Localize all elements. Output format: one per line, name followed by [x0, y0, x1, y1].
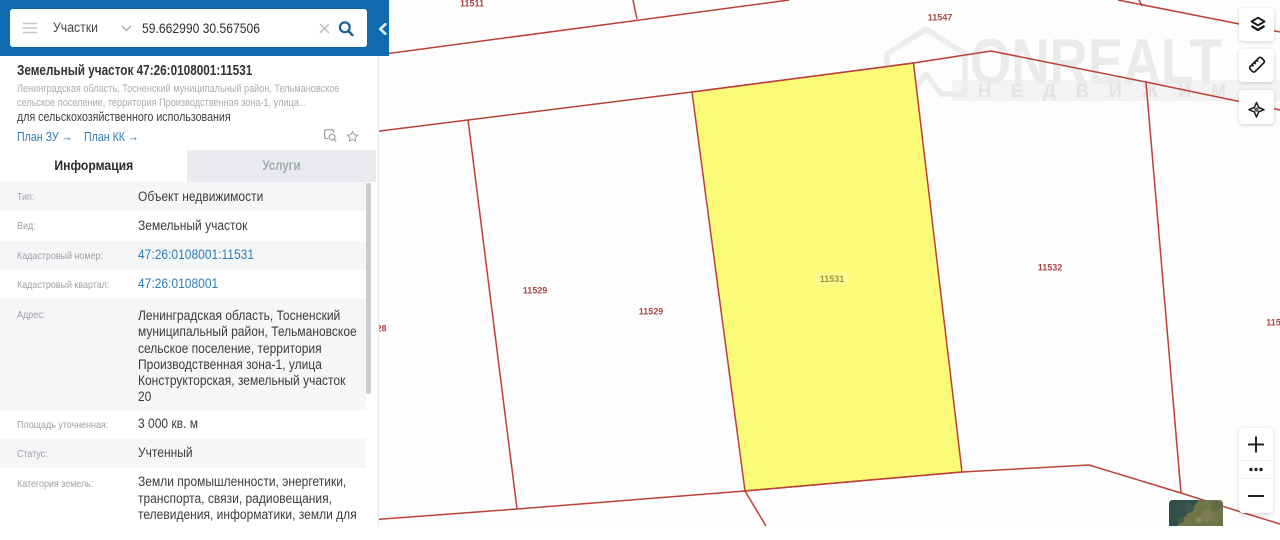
- svg-text:11529: 11529: [639, 307, 664, 317]
- svg-text:11511: 11511: [460, 0, 484, 9]
- svg-text:11532: 11532: [1038, 263, 1063, 273]
- svg-text:НЕДВИЖИМ: НЕДВИЖИМ: [978, 81, 1246, 101]
- svg-text:1153: 1153: [1266, 318, 1280, 328]
- svg-text:11529: 11529: [523, 286, 548, 296]
- svg-text:11547: 11547: [928, 13, 953, 23]
- svg-text:11531: 11531: [820, 274, 845, 284]
